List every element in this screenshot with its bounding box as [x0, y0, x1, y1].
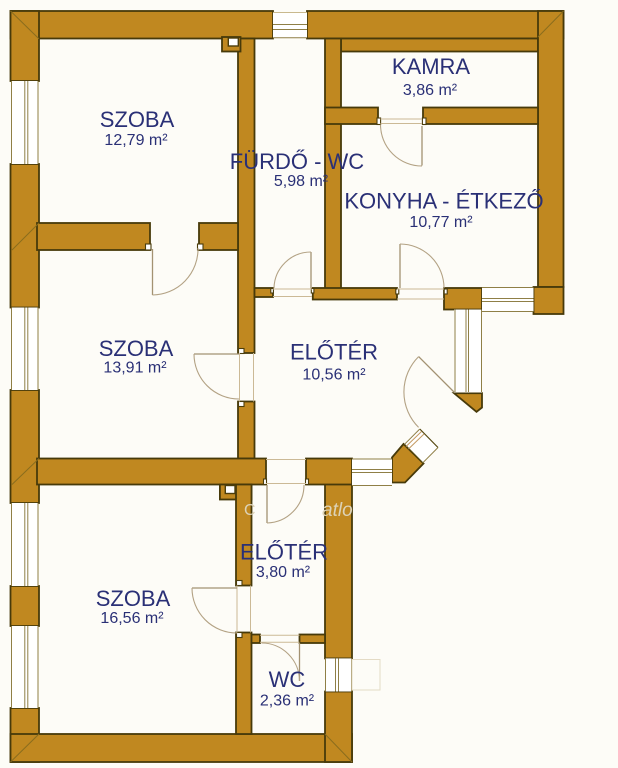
svg-text:ELŐTÉR: ELŐTÉR [290, 340, 378, 365]
svg-text:SZOBA: SZOBA [99, 336, 174, 361]
svg-text:10,77 m²: 10,77 m² [409, 214, 473, 231]
svg-text:SZOBA: SZOBA [100, 107, 175, 132]
svg-text:C: C [244, 502, 256, 519]
svg-text:13,91 m²: 13,91 m² [103, 360, 167, 377]
svg-text:3,86 m²: 3,86 m² [403, 82, 458, 99]
svg-text:5,98 m²: 5,98 m² [274, 173, 329, 190]
svg-text:ELŐTÉR: ELŐTÉR [240, 540, 328, 565]
svg-text:atlo: atlo [322, 500, 353, 521]
svg-text:2,36 m²: 2,36 m² [260, 693, 315, 710]
svg-text:10,56 m²: 10,56 m² [302, 367, 366, 384]
svg-text:12,79 m²: 12,79 m² [104, 132, 168, 149]
svg-text:KAMRA: KAMRA [392, 54, 471, 79]
svg-text:3,80 m²: 3,80 m² [256, 564, 311, 581]
svg-text:16,56 m²: 16,56 m² [100, 610, 164, 627]
svg-text:WC: WC [269, 667, 306, 692]
svg-text:SZOBA: SZOBA [96, 586, 171, 611]
svg-text:KONYHA - ÉTKEZŐ: KONYHA - ÉTKEZŐ [344, 189, 543, 214]
svg-text:FÜRDŐ - WC: FÜRDŐ - WC [230, 149, 365, 174]
